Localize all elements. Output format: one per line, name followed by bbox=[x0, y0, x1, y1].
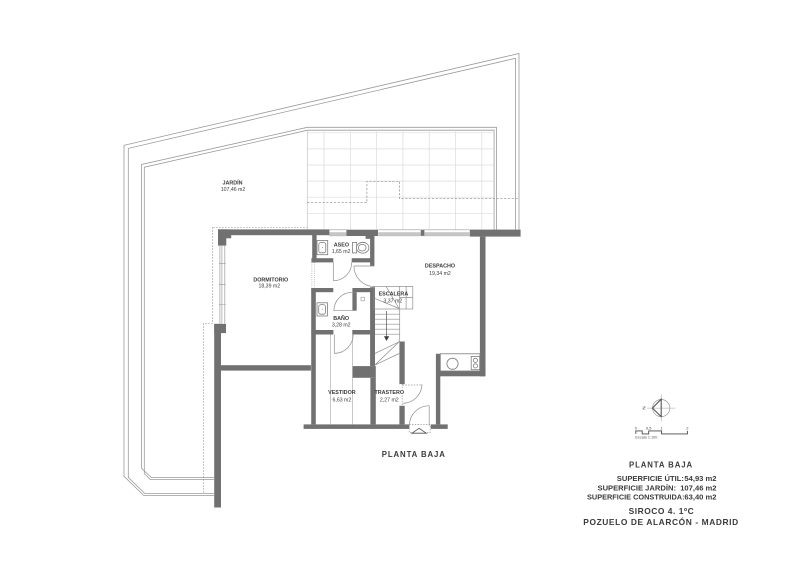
svg-text:107,46 m2: 107,46 m2 bbox=[221, 187, 246, 193]
svg-text:DORMITORIO: DORMITORIO bbox=[253, 278, 288, 284]
svg-text:0,5: 0,5 bbox=[646, 426, 651, 430]
svg-text:63,40 m2: 63,40 m2 bbox=[684, 492, 716, 501]
svg-text:54,93 m2: 54,93 m2 bbox=[684, 474, 716, 483]
svg-text:ASEO: ASEO bbox=[334, 243, 349, 249]
svg-text:SUPERFICIE CONSTRUIDA:: SUPERFICIE CONSTRUIDA: bbox=[587, 492, 685, 501]
svg-text:POZUELO DE ALARCÓN - MADRID: POZUELO DE ALARCÓN - MADRID bbox=[583, 516, 738, 527]
svg-text:PLANTA BAJA: PLANTA BAJA bbox=[382, 450, 446, 459]
svg-text:18,39 m2: 18,39 m2 bbox=[258, 284, 280, 290]
svg-text:19,34 m2: 19,34 m2 bbox=[429, 271, 451, 277]
svg-text:PLANTA BAJA: PLANTA BAJA bbox=[629, 460, 693, 469]
svg-text:SUPERFICIE JARDÍN:: SUPERFICIE JARDÍN: bbox=[598, 483, 676, 492]
svg-text:DESPACHO: DESPACHO bbox=[425, 264, 455, 270]
svg-text:1: 1 bbox=[661, 426, 663, 430]
svg-text:TRASTERO: TRASTERO bbox=[374, 390, 404, 396]
svg-text:SUPERFICIE ÚTIL:: SUPERFICIE ÚTIL: bbox=[617, 474, 684, 483]
svg-text:3,37 m2: 3,37 m2 bbox=[383, 299, 402, 305]
svg-text:BAÑO: BAÑO bbox=[333, 315, 349, 322]
svg-text:Escala 1:100: Escala 1:100 bbox=[635, 436, 657, 440]
svg-text:SIROCO 4. 1ºC: SIROCO 4. 1ºC bbox=[629, 506, 695, 516]
svg-text:JARDÍN: JARDÍN bbox=[222, 179, 242, 187]
svg-text:N: N bbox=[641, 406, 646, 409]
svg-text:6,63 m2: 6,63 m2 bbox=[333, 397, 352, 403]
svg-text:VESTIDOR: VESTIDOR bbox=[328, 390, 356, 396]
svg-text:1,65 m2: 1,65 m2 bbox=[332, 249, 351, 255]
svg-text:2: 2 bbox=[686, 426, 688, 430]
svg-text:0: 0 bbox=[635, 426, 637, 430]
svg-text:2,27 m2: 2,27 m2 bbox=[380, 397, 399, 403]
svg-text:107,46 m2: 107,46 m2 bbox=[680, 483, 716, 492]
svg-text:3,28 m2: 3,28 m2 bbox=[332, 322, 351, 328]
svg-text:ESCALERA: ESCALERA bbox=[379, 291, 409, 297]
